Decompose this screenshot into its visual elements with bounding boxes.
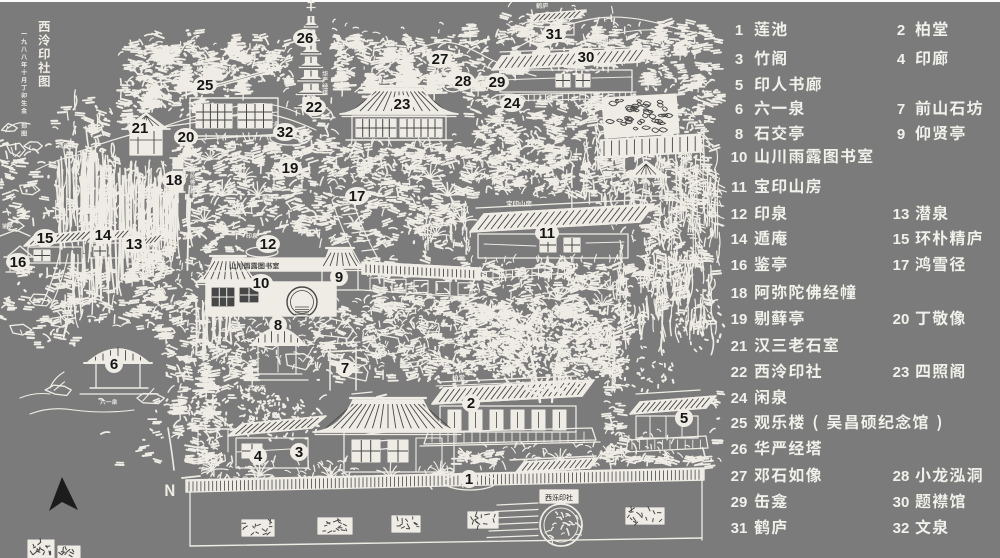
svg-text:20: 20	[893, 311, 910, 328]
svg-text:17: 17	[893, 257, 910, 274]
svg-text:26: 26	[731, 441, 748, 458]
svg-text:29: 29	[731, 494, 748, 511]
svg-text:2: 2	[897, 22, 905, 39]
svg-text:18: 18	[166, 172, 183, 189]
svg-text:11: 11	[539, 225, 555, 242]
svg-text:22: 22	[731, 364, 748, 381]
svg-text:5: 5	[680, 410, 688, 427]
svg-text:5: 5	[735, 77, 743, 94]
svg-text:2: 2	[467, 395, 475, 412]
svg-text:30: 30	[893, 494, 910, 511]
svg-text:31: 31	[546, 26, 563, 43]
svg-text:13: 13	[893, 206, 910, 223]
svg-text:15: 15	[893, 231, 910, 248]
svg-text:24: 24	[731, 390, 748, 407]
svg-text:21: 21	[132, 120, 149, 137]
svg-text:12: 12	[731, 206, 748, 223]
svg-text:32: 32	[893, 520, 910, 537]
svg-text:11: 11	[731, 179, 747, 196]
svg-text:28: 28	[455, 73, 472, 90]
svg-text:23: 23	[394, 96, 411, 113]
svg-text:31: 31	[731, 520, 748, 537]
svg-text:15: 15	[37, 230, 54, 247]
svg-text:4: 4	[897, 51, 906, 68]
svg-text:9: 9	[897, 126, 905, 143]
svg-text:25: 25	[197, 77, 214, 94]
svg-text:8: 8	[735, 126, 743, 143]
svg-text:13: 13	[126, 236, 143, 253]
svg-text:西泺印社: 西泺印社	[545, 493, 573, 502]
svg-text:1: 1	[735, 22, 743, 39]
svg-text:19: 19	[282, 160, 299, 177]
svg-text:12: 12	[260, 236, 277, 253]
svg-text:3: 3	[735, 51, 743, 68]
svg-text:9: 9	[335, 269, 343, 286]
svg-text:10: 10	[253, 275, 270, 292]
svg-text:32: 32	[277, 124, 294, 141]
svg-text:20: 20	[178, 129, 195, 146]
svg-text:25: 25	[731, 415, 748, 432]
svg-text:30: 30	[578, 49, 595, 66]
svg-text:16: 16	[10, 254, 27, 271]
svg-text:18: 18	[731, 285, 748, 302]
svg-text:19: 19	[731, 311, 748, 328]
svg-text:17: 17	[349, 188, 366, 205]
svg-text:10: 10	[731, 149, 748, 166]
svg-text:27: 27	[432, 51, 449, 68]
svg-text:27: 27	[731, 468, 748, 485]
svg-text:21: 21	[731, 338, 748, 355]
svg-text:23: 23	[893, 364, 910, 381]
svg-text:28: 28	[893, 468, 910, 485]
svg-text:1: 1	[465, 471, 473, 488]
svg-text:6: 6	[110, 356, 118, 373]
svg-text:4: 4	[254, 448, 263, 465]
svg-text:29: 29	[489, 74, 506, 91]
svg-text:3: 3	[295, 444, 303, 461]
svg-text:22: 22	[306, 99, 323, 116]
svg-text:7: 7	[341, 360, 349, 377]
svg-text:7: 7	[897, 101, 905, 118]
svg-text:24: 24	[504, 95, 521, 112]
svg-text:8: 8	[274, 317, 282, 334]
svg-text:6: 6	[735, 101, 743, 118]
svg-text:26: 26	[297, 30, 314, 47]
svg-text:16: 16	[731, 257, 748, 274]
svg-text:14: 14	[731, 231, 748, 248]
svg-text:14: 14	[95, 227, 112, 244]
